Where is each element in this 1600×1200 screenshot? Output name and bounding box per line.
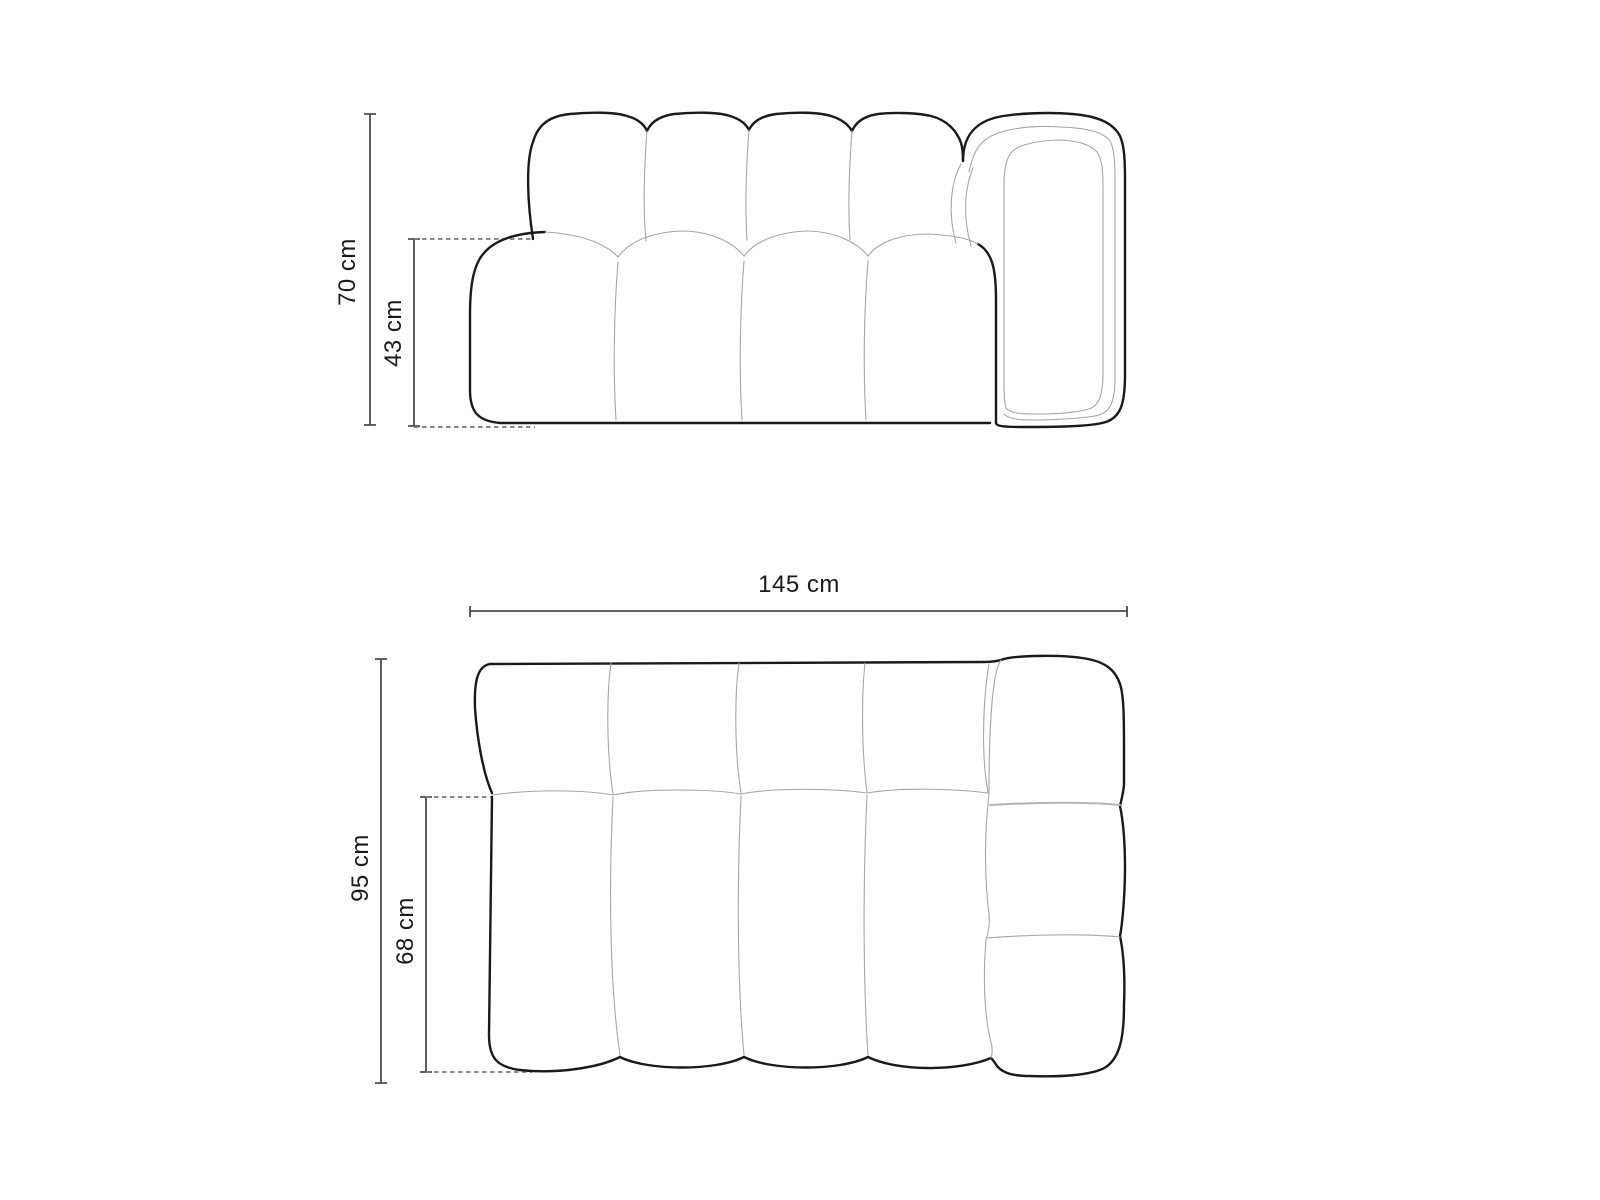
front-elevation-view xyxy=(364,113,1125,427)
seat-outline-front xyxy=(470,232,990,423)
back-outline-plan xyxy=(475,662,983,793)
armrest-outline-plan xyxy=(983,656,1125,1076)
armrest-arch-panel-front xyxy=(1004,140,1103,414)
seat-top-seam-front xyxy=(545,231,978,257)
dimension-label-total-depth: 95 cm xyxy=(349,834,373,902)
armrest-divider-1-plan xyxy=(990,803,1120,805)
sofa-dimension-drawing xyxy=(0,0,1600,1200)
dimension-line-seat-height xyxy=(408,239,420,426)
seat-channel-seams-plan xyxy=(611,795,868,1055)
dimension-label-seat-height: 43 cm xyxy=(382,299,406,367)
dimension-label-total-height: 70 cm xyxy=(336,238,360,306)
armrest-inner-seam-front xyxy=(969,127,1115,420)
dimension-line-total-width xyxy=(470,606,1127,617)
seat-right-edge-front xyxy=(978,244,996,423)
dimension-label-seat-depth: 68 cm xyxy=(394,897,418,965)
armrest-divider-2-plan xyxy=(987,935,1120,938)
armrest-gap-seams-front xyxy=(951,164,973,246)
dimension-line-total-height xyxy=(364,114,376,425)
seat-channel-seams-front xyxy=(614,261,868,420)
seat-outline-plan xyxy=(489,797,991,1071)
top-plan-view xyxy=(375,606,1127,1083)
dimension-line-total-depth xyxy=(375,659,387,1083)
armrest-left-seam-plan xyxy=(984,660,1001,1058)
dimension-diagram-canvas: 70 cm 43 cm 145 cm 95 cm 68 cm xyxy=(0,0,1600,1200)
dimension-line-seat-depth xyxy=(420,797,432,1072)
back-channel-seams-plan xyxy=(608,663,989,794)
back-channel-seams-front xyxy=(644,130,852,241)
dimension-label-total-width: 145 cm xyxy=(758,573,840,597)
